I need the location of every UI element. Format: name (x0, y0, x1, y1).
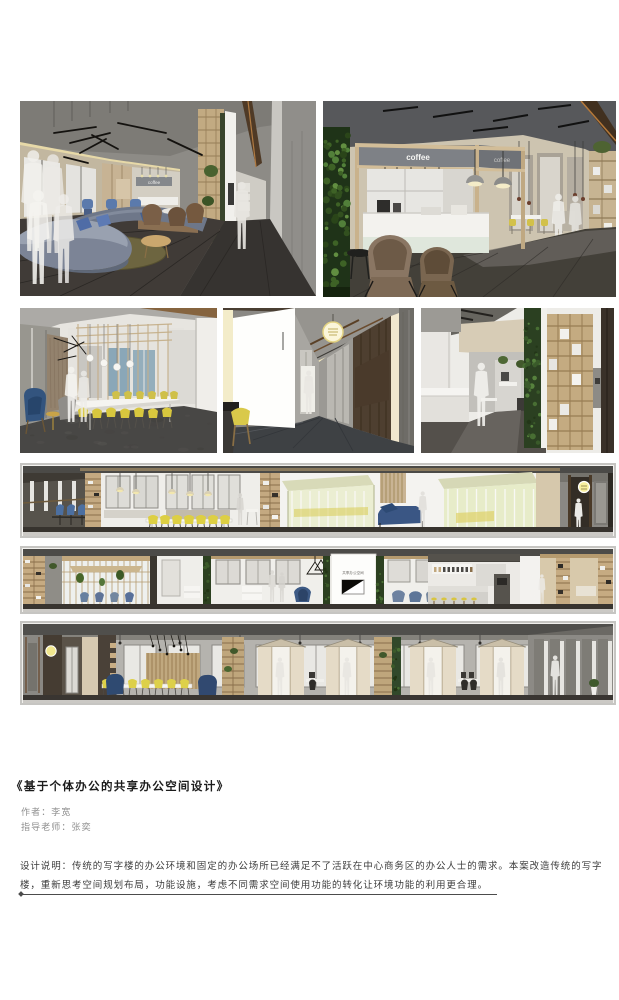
svg-text:coffee: coffee (494, 158, 511, 164)
svg-text:coffee: coffee (406, 153, 430, 162)
svg-text:共享办公空间: 共享办公空间 (342, 570, 364, 575)
svg-text:coffee: coffee (148, 180, 161, 185)
